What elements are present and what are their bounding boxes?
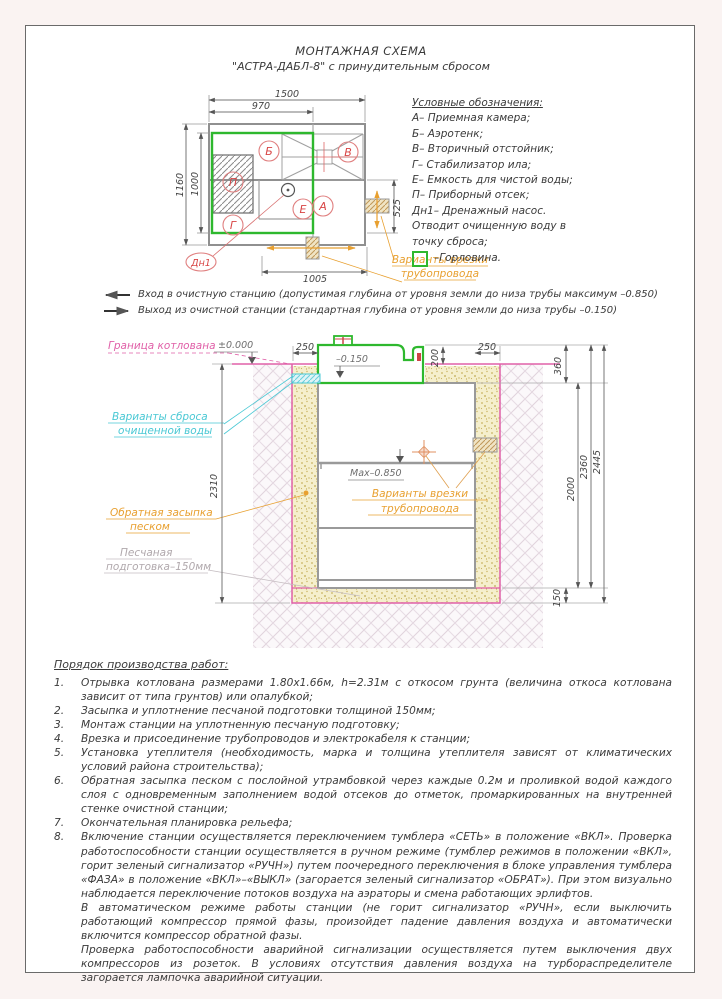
legend-title: Условные обозначения: [412, 96, 670, 111]
procedure-item: 8.Включение станции осуществляется перек… [54, 830, 672, 900]
neck-symbol-icon [412, 251, 428, 267]
procedure-title: Порядок производства работ: [54, 658, 672, 673]
legend-item: В– Вторичный отстойник; [412, 142, 670, 157]
procedure-item: 1.Отрывка котлована размерами 1.80х1.66м… [54, 676, 672, 704]
outlet-note: Выход из очистной станции (стандартная г… [138, 305, 698, 316]
procedure-item: 5.Установка утеплителя (необходимость, м… [54, 746, 672, 774]
drawing-sheet-page: { "title": { "line1": "МОНТАЖНАЯ СХЕМА",… [0, 0, 722, 999]
procedure-item: 7.Окончательная планировка рельефа; [54, 816, 672, 830]
legend-item: точку сброса; [412, 235, 670, 250]
legend-item: Б– Аэротенк; [412, 127, 670, 142]
legend: Условные обозначения: А– Приемная камера… [412, 96, 670, 267]
legend-item: Дн1– Дренажный насос. [412, 204, 670, 219]
legend-item: А– Приемная камера; [412, 111, 670, 126]
legend-item: П– Приборный отсек; [412, 188, 670, 203]
drawing-subtitle: "АСТРА-ДАБЛ-8" с принудительным сбросом [0, 60, 722, 73]
procedure-item: 2.Засыпка и уплотнение песчаной подготов… [54, 704, 672, 718]
legend-item: Г– Стабилизатор ила; [412, 158, 670, 173]
legend-item-gorlovina: –Горловина. [412, 251, 670, 267]
procedure-item: 4.Врезка и присоединение трубопроводов и… [54, 732, 672, 746]
procedure-item: 3.Монтаж станции на уплотненную песчаную… [54, 718, 672, 732]
procedure-item: 6.Обратная засыпка песком с послойной ут… [54, 774, 672, 816]
legend-item: Отводит очищенную воду в [412, 219, 670, 234]
legend-item: Е– Емкость для чистой воды; [412, 173, 670, 188]
procedure: Порядок производства работ: 1.Отрывка ко… [54, 658, 672, 985]
drawing-title: МОНТАЖНАЯ СХЕМА [0, 44, 722, 58]
inlet-note: Вход в очистную станцию (допустимая глуб… [138, 289, 698, 300]
procedure-paragraph: Проверка работоспособности аварийной сиг… [81, 943, 672, 985]
procedure-paragraph: В автоматическом режиме работы станции (… [81, 901, 672, 943]
